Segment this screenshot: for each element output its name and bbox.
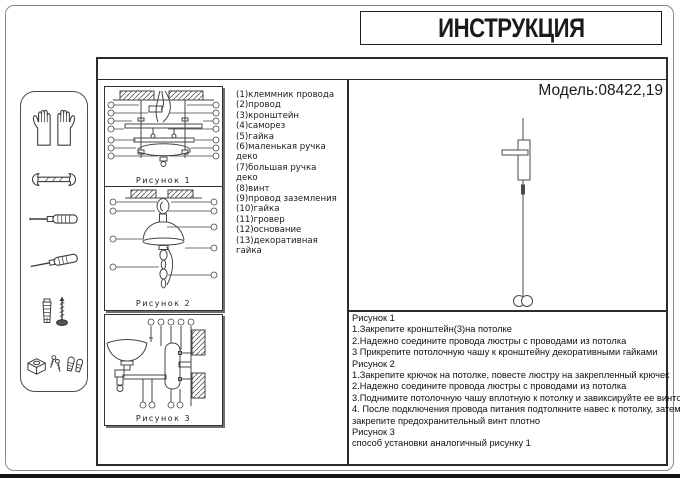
wrench-icon xyxy=(28,171,80,188)
figure-2-box: Рисунок 2 xyxy=(104,186,223,311)
instruction-line: способ установки аналогичный рисунку 1 xyxy=(352,438,662,449)
flat-screwdriver-icon xyxy=(28,213,80,225)
parts-list: (1)клеммник провода (2)провод (3)кронште… xyxy=(236,90,339,257)
instruction-line: 3 Прикрепите потолочную чашу к кронштейн… xyxy=(352,347,662,358)
figure-1-box: Рисунок 1 xyxy=(104,86,223,188)
pendant-lamp-drawing xyxy=(488,112,548,310)
instruction-line: 3.Поднимите потолочную чашу вплотную к п… xyxy=(352,393,662,404)
small-fasteners-icon xyxy=(25,351,83,378)
model-label: Модель:08422,19 xyxy=(538,82,663,100)
part-item: (11)гровер xyxy=(236,215,339,225)
instruction-line: закрепите предохранительный винт плотно xyxy=(352,416,662,427)
figure-1-caption: Рисунок 1 xyxy=(105,176,222,185)
tools-panel xyxy=(20,91,88,392)
instruction-line: Рисунок 1 xyxy=(352,313,662,324)
part-item: (8)винт xyxy=(236,184,339,194)
figure-3-caption: Рисунок 3 xyxy=(105,414,222,423)
part-item: (5)гайка xyxy=(236,132,339,142)
instructions-block: Рисунок 1 1.Закрепите кронштейн(3)на пот… xyxy=(352,313,662,450)
figure-3-box: Рисунок 3 xyxy=(104,314,223,426)
part-item: (9)провод заземления xyxy=(236,194,339,204)
instruction-line: 1.Закрепите крючок на потолке, повесте л… xyxy=(352,370,662,381)
instructions-divider xyxy=(347,310,666,312)
main-panel: Модель:08422,19 xyxy=(96,57,668,466)
page-bottom-edge xyxy=(0,474,680,478)
part-item: (6)маленькая ручка деко xyxy=(236,142,339,163)
vertical-divider xyxy=(347,80,349,464)
figure-2-caption: Рисунок 2 xyxy=(105,299,222,308)
part-item: (13)декоративная гайка xyxy=(236,236,339,257)
gloves-icon xyxy=(29,105,79,147)
instruction-line: Рисунок 3 xyxy=(352,427,662,438)
part-item: (2)провод xyxy=(236,100,339,110)
wall-anchor-and-screw-icon xyxy=(37,296,71,327)
part-item: (3)кронштейн xyxy=(236,111,339,121)
instruction-line: 1.Закрепите кронштейн(3)на потолке xyxy=(352,324,662,335)
part-item: (10)гайка xyxy=(236,204,339,214)
figure-1-diagram xyxy=(105,88,222,172)
page-title: ИНСТРУКЦИЯ xyxy=(438,13,585,44)
part-item: (12)основание xyxy=(236,225,339,235)
instruction-line: Рисунок 2 xyxy=(352,359,662,370)
part-item: (7)большая ручка деко xyxy=(236,163,339,184)
instruction-line: 4. После подключения провода питания под… xyxy=(352,404,662,415)
part-item: (4)саморез xyxy=(236,121,339,131)
figure-2-diagram xyxy=(105,188,222,296)
instruction-sheet: ИНСТРУКЦИЯ xyxy=(0,0,680,480)
title-box: ИНСТРУКЦИЯ xyxy=(360,11,662,45)
header-strip xyxy=(98,59,666,80)
instruction-line: 2.Надежно соедините провода люстры с про… xyxy=(352,381,662,392)
part-item: (1)клеммник провода xyxy=(236,90,339,100)
instruction-line: 2.Надежно соедините провода люстры с про… xyxy=(352,336,662,347)
figure-3-diagram xyxy=(105,316,222,412)
phillips-screwdriver-icon xyxy=(28,249,80,271)
